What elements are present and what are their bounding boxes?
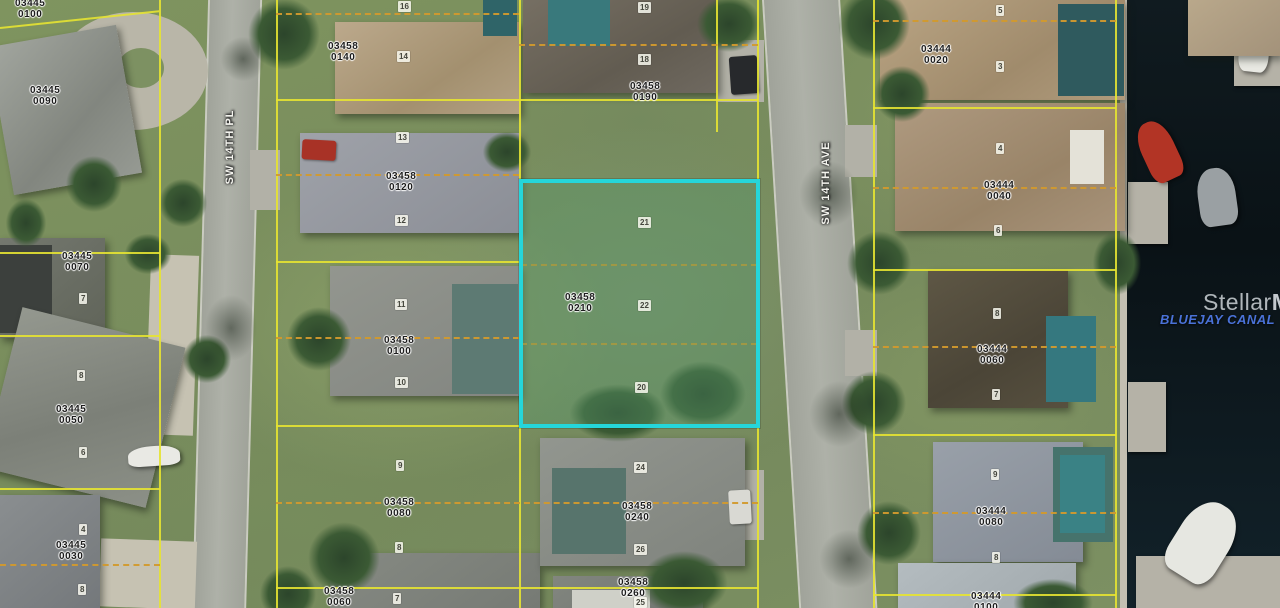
- parcel-boundary-line: [873, 107, 1116, 109]
- lot-split-line: [0, 564, 160, 566]
- parcel-id-label: 03445 0100: [15, 0, 45, 20]
- lot-number-badge: 8: [992, 552, 1000, 563]
- parcel-boundary-line: [1115, 0, 1117, 608]
- lot-number-badge: 8: [78, 584, 86, 595]
- parcel-boundary-line: [873, 434, 1116, 436]
- lot-number-badge: 19: [638, 2, 651, 13]
- lot-number-badge: 5: [996, 5, 1004, 16]
- parcel-boundary-line: [873, 0, 875, 608]
- dock: [1128, 382, 1166, 452]
- lot-number-badge: 16: [398, 1, 411, 12]
- parcel-id-label: 03458 0120: [386, 171, 416, 193]
- lot-number-badge: 8: [395, 542, 403, 553]
- lot-number-badge: 22: [638, 300, 651, 311]
- parcel-boundary-line: [873, 269, 1116, 271]
- parcel-boundary-line: [276, 425, 519, 427]
- pool: [1060, 455, 1105, 533]
- parcel-id-label: 03458 0190: [630, 81, 660, 103]
- lot-number-badge: 26: [634, 544, 647, 555]
- lot-number-badge: 24: [634, 462, 647, 473]
- lot-number-badge: 18: [638, 54, 651, 65]
- parcel-boundary-line: [276, 99, 758, 101]
- lot-split-line: [519, 44, 758, 46]
- parcel-id-label: 03444 0100: [971, 591, 1001, 608]
- lot-number-badge: 8: [77, 370, 85, 381]
- lot-number-badge: 13: [396, 132, 409, 143]
- parcel-id-label: 03458 0260: [618, 577, 648, 599]
- lot-number-badge: 7: [393, 593, 401, 604]
- parcel-id-label: 03458 0100: [384, 335, 414, 357]
- parcel-id-label: 03458 0210: [565, 292, 595, 314]
- parcel-id-label: 03444 0060: [977, 344, 1007, 366]
- black-car: [729, 55, 760, 95]
- lot-number-badge: 11: [395, 299, 407, 310]
- pool: [548, 0, 610, 46]
- parcel-id-label: 03458 0240: [622, 501, 652, 523]
- house-roof: [1188, 0, 1280, 56]
- lot-number-badge: 9: [991, 469, 999, 480]
- paver-driveway-bottom: [99, 538, 197, 608]
- lot-number-badge: 25: [634, 597, 647, 608]
- lot-number-badge: 4: [79, 524, 87, 535]
- parcel-boundary-line: [716, 0, 718, 132]
- lot-number-badge: 12: [395, 215, 408, 226]
- pool: [483, 0, 517, 36]
- parcel-id-label: 03444 0020: [921, 44, 951, 66]
- pool-enclosure: [552, 468, 626, 554]
- lot-number-badge: 10: [395, 377, 408, 388]
- map-canvas: 03445 010003445 009003445 007003445 0050…: [0, 0, 1280, 608]
- street-label-sw-14th-ave: SW 14TH AVE: [820, 141, 832, 224]
- shed: [1070, 130, 1104, 184]
- red-car: [301, 139, 336, 161]
- lot-split-line: [873, 20, 1116, 22]
- lot-number-badge: 3: [996, 61, 1004, 72]
- watermark-stellar: Stellar: [1203, 289, 1272, 315]
- lot-number-badge: 14: [397, 51, 410, 62]
- lot-number-badge: 6: [994, 225, 1002, 236]
- parcel-id-label: 03445 0030: [56, 540, 86, 562]
- street-label-sw-14th-pl: SW 14TH PL: [224, 110, 236, 185]
- parcel-boundary-line: [0, 335, 160, 337]
- lot-number-badge: 9: [396, 460, 404, 471]
- parcel-id-label: 03445 0050: [56, 404, 86, 426]
- parcel-id-label: 03458 0060: [324, 586, 354, 608]
- lot-number-badge: 7: [79, 293, 87, 304]
- parcel-boundary-line: [159, 0, 161, 608]
- lot-split-line: [276, 502, 758, 504]
- lot-number-badge: 7: [992, 389, 1000, 400]
- parcel-boundary-line: [276, 0, 278, 608]
- pool: [1046, 316, 1096, 402]
- watermark-mls: MLS: [1272, 289, 1280, 315]
- parcel-boundary-line: [0, 488, 160, 490]
- parcel-id-label: 03444 0080: [976, 506, 1006, 528]
- lot-number-badge: 20: [635, 382, 648, 393]
- lot-number-badge: 8: [993, 308, 1001, 319]
- lot-number-badge: 21: [638, 217, 651, 228]
- parcel-id-label: 03458 0140: [328, 41, 358, 63]
- lot-number-badge: 6: [79, 447, 87, 458]
- parcel-boundary-line: [276, 261, 519, 263]
- parcel-id-label: 03445 0070: [62, 251, 92, 273]
- pool-enclosure: [452, 284, 518, 394]
- lot-number-badge: 4: [996, 143, 1004, 154]
- parcel-id-label: 03445 0090: [30, 85, 60, 107]
- stellar-mls-watermark: StellarMLS: [1203, 289, 1280, 316]
- parcel-id-label: 03458 0080: [384, 497, 414, 519]
- parcel-id-label: 03444 0040: [984, 180, 1014, 202]
- lot-split-line: [276, 13, 519, 15]
- white-car: [728, 489, 752, 524]
